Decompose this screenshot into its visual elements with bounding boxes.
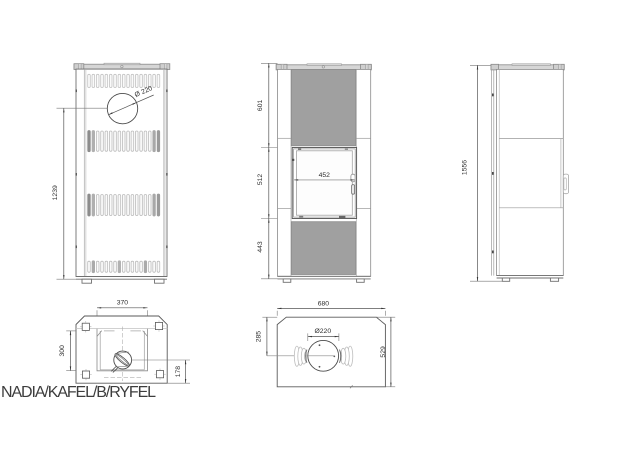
svg-text:NADIA/KAFEL/B/RYFEL: NADIA/KAFEL/B/RYFEL [1, 384, 156, 401]
svg-text:178: 178 [175, 366, 182, 378]
svg-text:1556: 1556 [461, 160, 468, 175]
svg-text:1239: 1239 [52, 185, 59, 200]
svg-text:452: 452 [319, 172, 331, 179]
svg-text:300: 300 [59, 345, 66, 357]
svg-text:Ø220: Ø220 [314, 328, 331, 335]
svg-text:443: 443 [257, 241, 264, 253]
svg-text:370: 370 [117, 300, 129, 307]
svg-text:529: 529 [380, 346, 387, 358]
svg-text:601: 601 [257, 100, 264, 112]
svg-text:680: 680 [318, 301, 330, 308]
svg-text:285: 285 [256, 331, 263, 343]
svg-text:512: 512 [257, 174, 264, 186]
